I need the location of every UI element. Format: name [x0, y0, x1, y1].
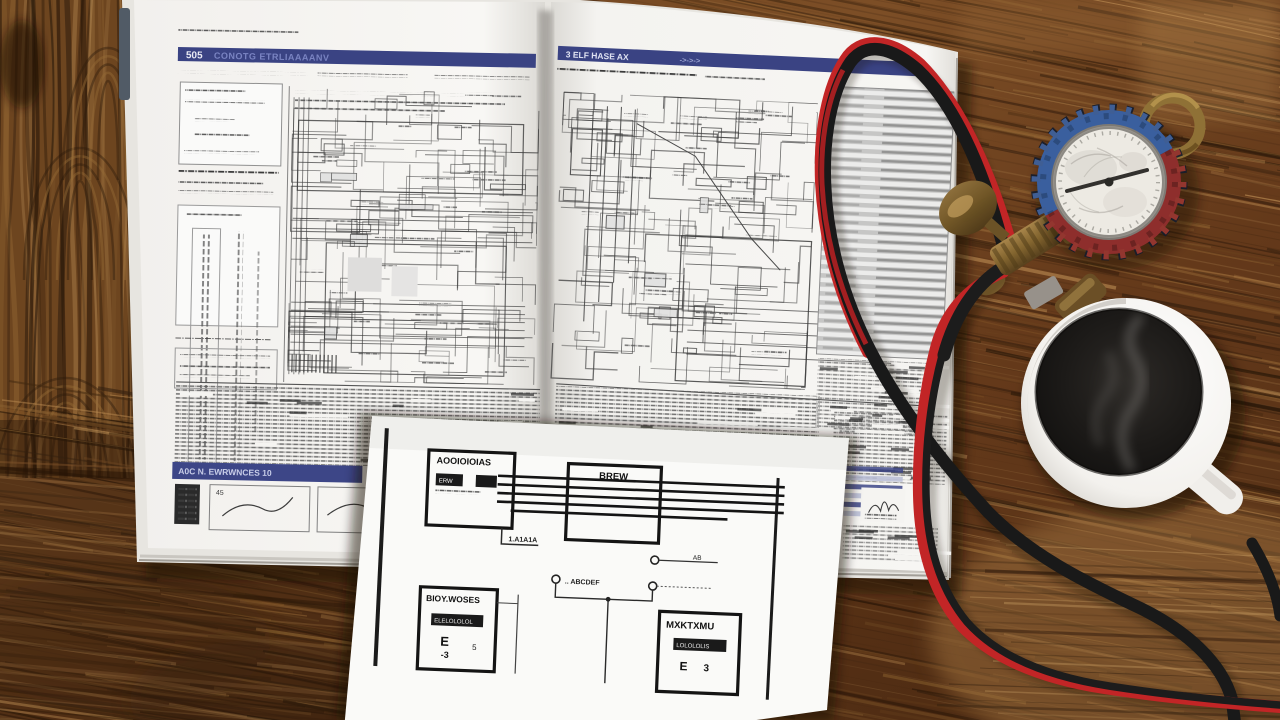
svg-text:MXKTXMU: MXKTXMU [666, 620, 715, 633]
svg-text:505: 505 [186, 50, 203, 61]
svg-text:1.A1A1A: 1.A1A1A [508, 536, 537, 544]
svg-text:.. ABCDEF: .. ABCDEF [565, 579, 601, 587]
svg-text:->->->: ->->-> [679, 55, 701, 65]
svg-text:45: 45 [216, 490, 224, 497]
svg-text:A0C N. EWRWNCES 10: A0C N. EWRWNCES 10 [178, 466, 272, 478]
svg-text:E: E [679, 659, 688, 673]
svg-text:3: 3 [703, 663, 709, 674]
svg-text:ERW: ERW [439, 478, 453, 485]
svg-text:AB: AB [693, 555, 702, 562]
svg-text:E: E [440, 634, 450, 649]
svg-text:-3: -3 [441, 650, 449, 660]
